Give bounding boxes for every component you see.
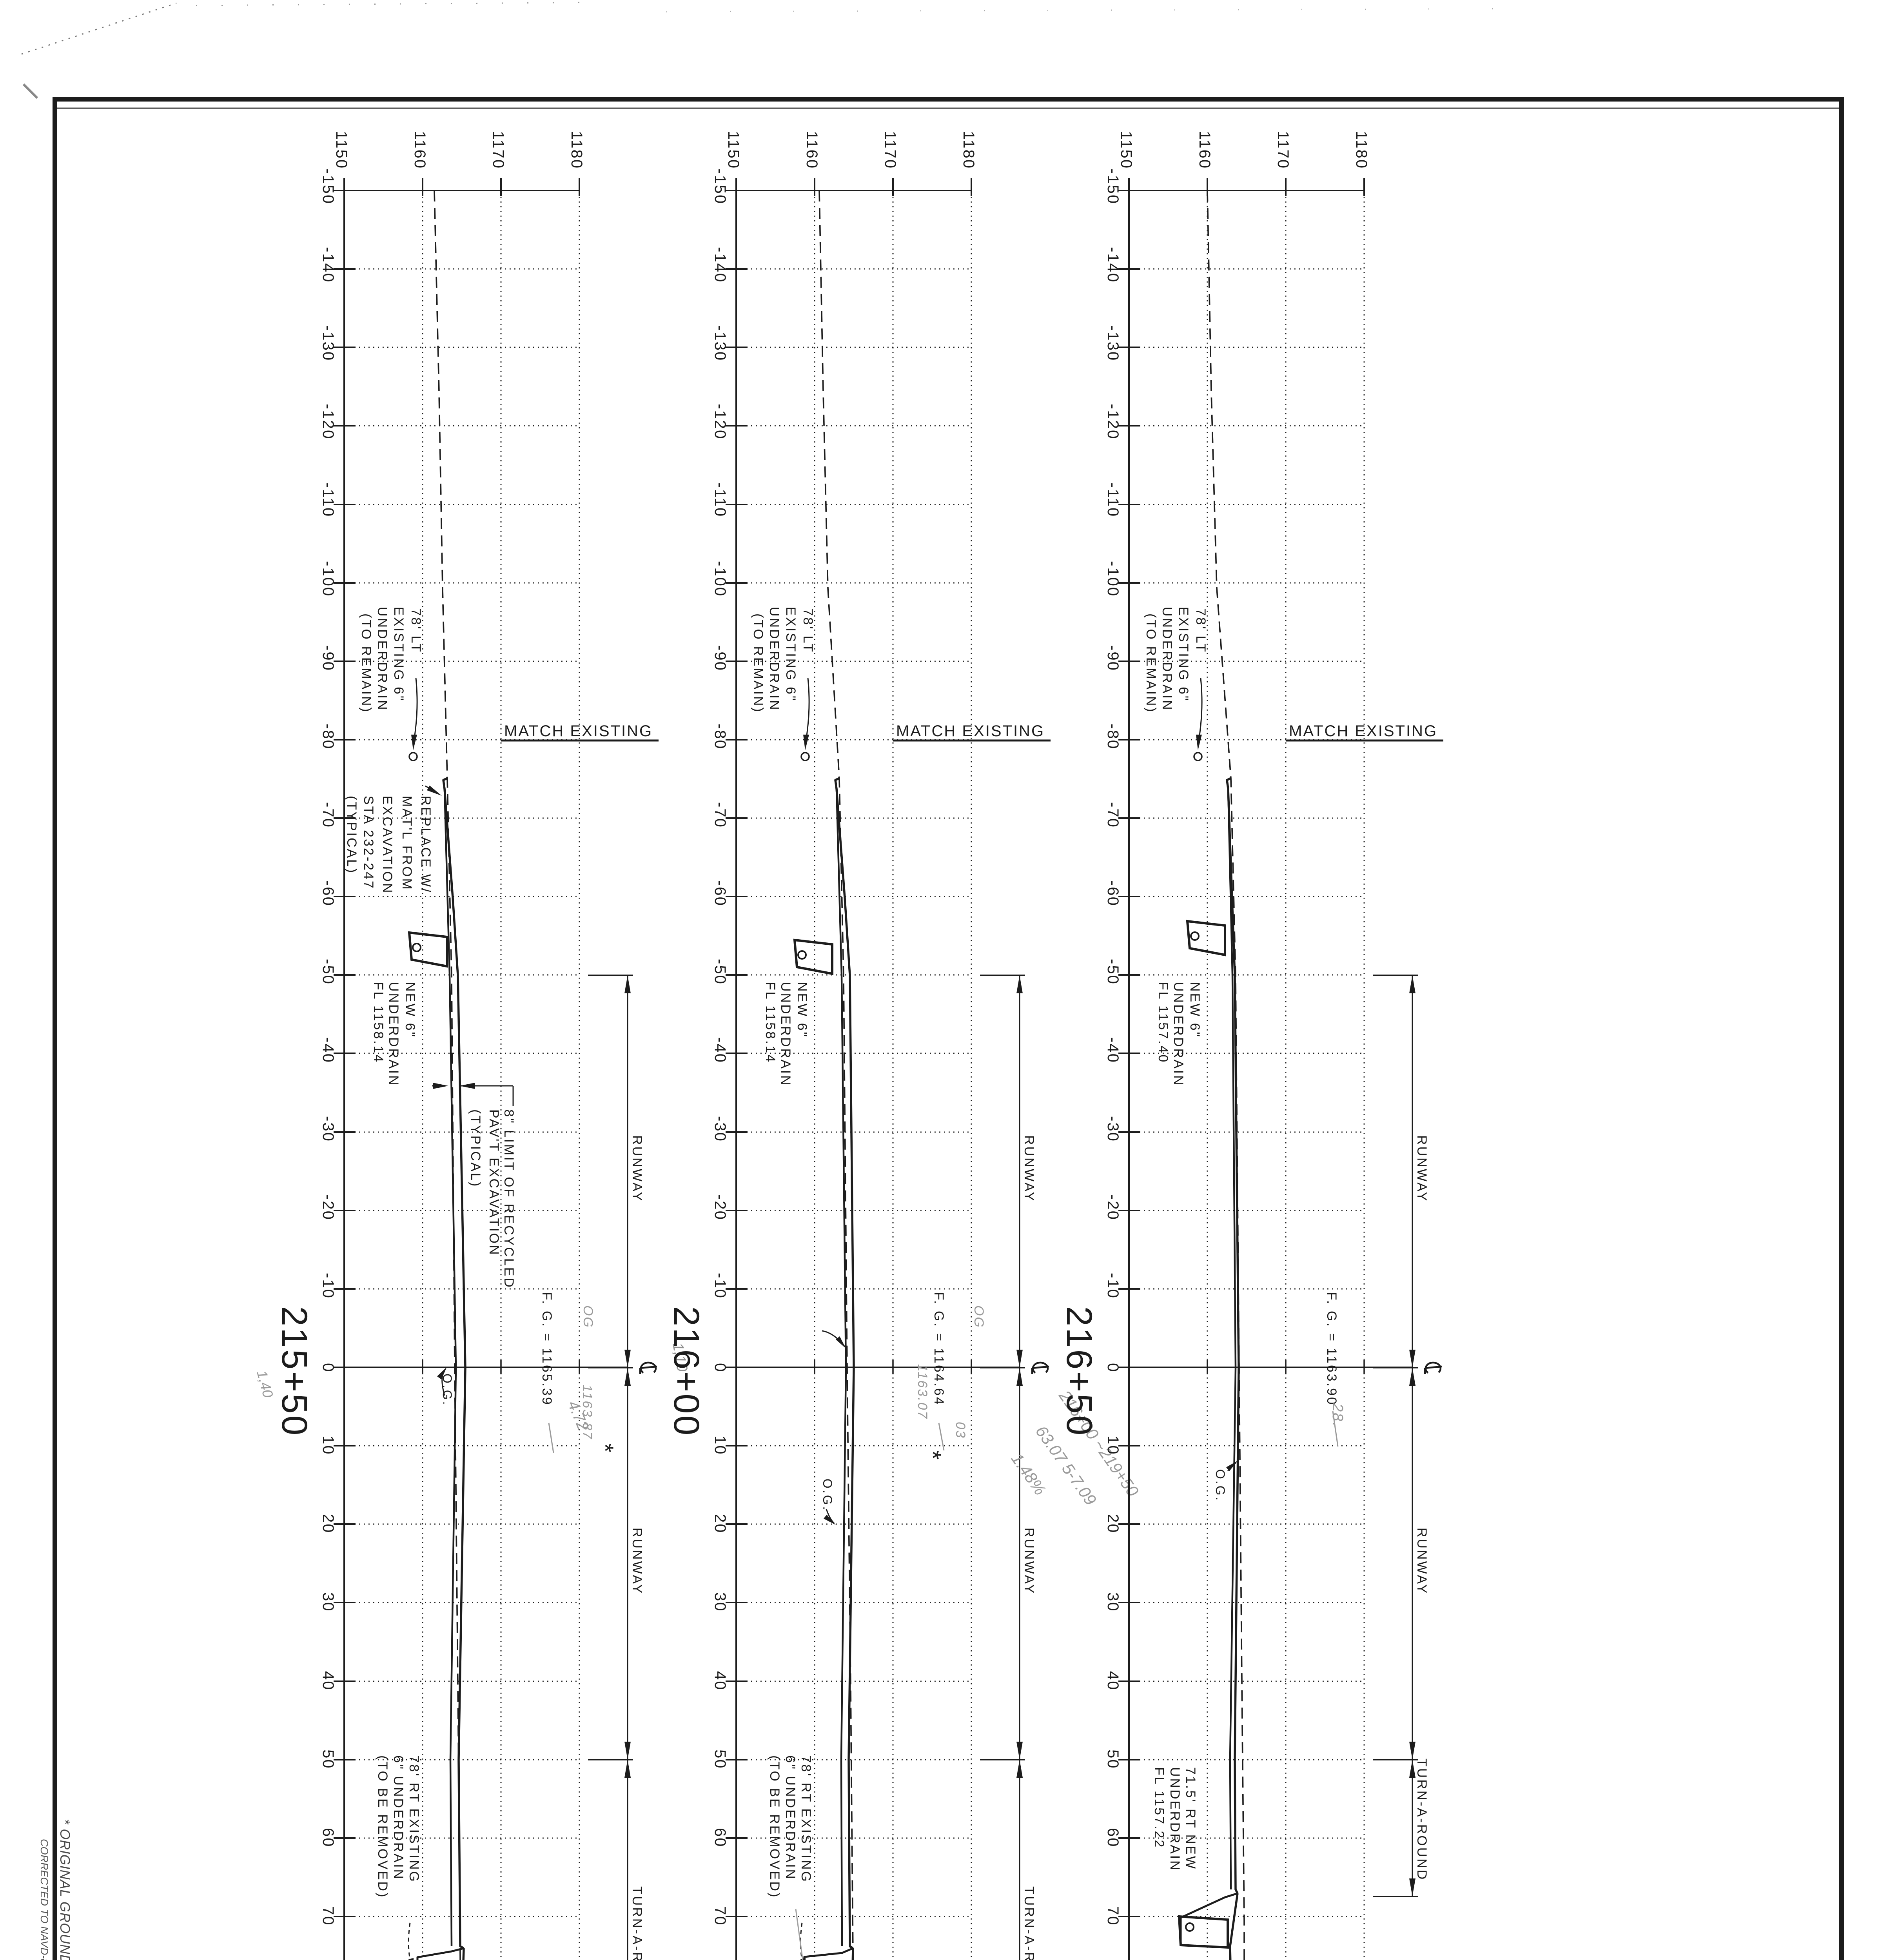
svg-text:1150: 1150 xyxy=(333,131,350,169)
svg-text:-70: -70 xyxy=(711,802,729,828)
svg-text:10: 10 xyxy=(319,1436,337,1455)
svg-text:30: 30 xyxy=(711,1592,729,1612)
svg-text:1160: 1160 xyxy=(803,131,820,169)
svg-text:OG: OG xyxy=(971,1305,986,1328)
svg-text:(TYPICAL): (TYPICAL) xyxy=(344,796,359,874)
svg-text:CORRECTED TO NAVD-88: CORRECTED TO NAVD-88 xyxy=(38,1839,50,1960)
svg-text:-30: -30 xyxy=(1104,1116,1122,1142)
svg-text:UNDERDRAIN: UNDERDRAIN xyxy=(1171,982,1186,1087)
svg-text:-150: -150 xyxy=(1104,169,1122,205)
svg-text:-80: -80 xyxy=(711,724,729,750)
svg-text:-30: -30 xyxy=(711,1116,729,1142)
svg-text:UNDERDRAIN: UNDERDRAIN xyxy=(1167,1767,1182,1872)
svg-text:1170: 1170 xyxy=(490,131,507,169)
svg-text:-150: -150 xyxy=(319,169,337,205)
svg-text:216+00: 216+00 xyxy=(666,1306,706,1437)
svg-text:RUNWAY: RUNWAY xyxy=(1022,1528,1036,1595)
svg-text:-120: -120 xyxy=(319,404,337,440)
svg-text:70: 70 xyxy=(319,1906,337,1926)
svg-text:(TO REMAIN): (TO REMAIN) xyxy=(751,613,766,713)
svg-text:-150: -150 xyxy=(711,169,729,205)
svg-text:-140: -140 xyxy=(1104,247,1122,283)
svg-text:-100: -100 xyxy=(711,561,729,597)
svg-text:UNDERDRAIN: UNDERDRAIN xyxy=(386,982,401,1087)
svg-text:EXISTING 6": EXISTING 6" xyxy=(1176,607,1191,702)
svg-text:20: 20 xyxy=(711,1514,729,1534)
svg-text:-100: -100 xyxy=(1104,561,1122,597)
svg-text:EXCAVATION: EXCAVATION xyxy=(380,796,395,895)
svg-text:1150: 1150 xyxy=(1118,131,1135,169)
svg-text:NEW 6": NEW 6" xyxy=(795,982,809,1038)
svg-text:78' LT: 78' LT xyxy=(408,608,423,653)
svg-text:-110: -110 xyxy=(711,483,729,517)
svg-text:OG: OG xyxy=(581,1305,595,1328)
svg-text:(TO BE REMOVED): (TO BE REMOVED) xyxy=(767,1755,782,1898)
svg-text:EXISTING 6": EXISTING 6" xyxy=(783,607,798,702)
svg-text:(TO BE REMOVED): (TO BE REMOVED) xyxy=(375,1755,390,1898)
svg-text:-130: -130 xyxy=(1104,325,1122,361)
svg-text:O.G.: O.G. xyxy=(820,1479,835,1512)
svg-text:0: 0 xyxy=(711,1363,729,1373)
svg-text:-140: -140 xyxy=(711,247,729,283)
svg-text:UNDERDRAIN: UNDERDRAIN xyxy=(767,607,782,711)
svg-text:(TO REMAIN): (TO REMAIN) xyxy=(359,613,374,713)
svg-text:70: 70 xyxy=(711,1906,729,1926)
svg-text:-10: -10 xyxy=(319,1273,337,1299)
svg-text:216+50: 216+50 xyxy=(1059,1306,1099,1437)
svg-text:215+50: 215+50 xyxy=(274,1306,314,1437)
svg-text:-70: -70 xyxy=(319,802,337,828)
svg-text:-60: -60 xyxy=(711,880,729,907)
svg-text:-140: -140 xyxy=(319,247,337,283)
svg-text:-40: -40 xyxy=(319,1037,337,1063)
svg-text:(TYPICAL): (TYPICAL) xyxy=(468,1109,483,1188)
svg-text:1180: 1180 xyxy=(568,131,585,169)
svg-text:-10: -10 xyxy=(711,1273,729,1299)
svg-text:UNDERDRAIN: UNDERDRAIN xyxy=(375,607,390,711)
svg-text:1180: 1180 xyxy=(960,131,977,169)
svg-text:50: 50 xyxy=(711,1749,729,1769)
svg-text:EXISTING 6": EXISTING 6" xyxy=(391,607,406,702)
svg-text:40: 40 xyxy=(319,1671,337,1691)
svg-text:RUNWAY: RUNWAY xyxy=(1414,1528,1429,1595)
svg-text:(TO REMAIN): (TO REMAIN) xyxy=(1143,613,1158,713)
svg-text:NEW 6": NEW 6" xyxy=(1187,982,1202,1038)
svg-text:70: 70 xyxy=(1104,1906,1122,1926)
svg-text:F. G. = 1165.39: F. G. = 1165.39 xyxy=(539,1292,554,1406)
svg-text:78' RT EXISTING: 78' RT EXISTING xyxy=(799,1755,813,1883)
svg-text:-120: -120 xyxy=(1104,404,1122,440)
svg-text:NEW 6": NEW 6" xyxy=(403,982,417,1038)
svg-text:1150: 1150 xyxy=(725,131,742,169)
svg-text:-100: -100 xyxy=(319,561,337,597)
svg-text:FL 1158.14: FL 1158.14 xyxy=(763,982,778,1063)
svg-text:8" LIMIT OF RECYCLED: 8" LIMIT OF RECYCLED xyxy=(501,1109,516,1289)
svg-text:40: 40 xyxy=(1104,1671,1122,1691)
svg-text:1160: 1160 xyxy=(1196,131,1213,169)
svg-text:FL 1158.14: FL 1158.14 xyxy=(371,982,386,1063)
svg-text:MATCH EXISTING: MATCH EXISTING xyxy=(896,722,1045,740)
svg-text:MAT'L FROM: MAT'L FROM xyxy=(399,796,414,891)
svg-text:03: 03 xyxy=(953,1422,968,1439)
svg-text:50: 50 xyxy=(1104,1749,1122,1769)
svg-text:1160: 1160 xyxy=(411,131,428,169)
svg-text:RUNWAY: RUNWAY xyxy=(1022,1135,1036,1202)
svg-text:MATCH EXISTING: MATCH EXISTING xyxy=(504,722,653,740)
svg-text:RUNWAY: RUNWAY xyxy=(630,1135,644,1202)
svg-text:30: 30 xyxy=(319,1592,337,1612)
svg-text:-70: -70 xyxy=(1104,802,1122,828)
svg-text:F. G. = 1164.64: F. G. = 1164.64 xyxy=(931,1292,946,1406)
svg-text:-50: -50 xyxy=(1104,959,1122,985)
svg-text:F. G. = 1163.90: F. G. = 1163.90 xyxy=(1324,1292,1339,1406)
svg-text:RUNWAY: RUNWAY xyxy=(630,1528,644,1595)
svg-text:-60: -60 xyxy=(319,880,337,907)
svg-text:-110: -110 xyxy=(1104,483,1122,517)
svg-text:-80: -80 xyxy=(1104,724,1122,750)
svg-text:FL 1157.22: FL 1157.22 xyxy=(1152,1767,1167,1849)
svg-text:60: 60 xyxy=(711,1828,729,1848)
svg-text:78' LT: 78' LT xyxy=(1193,608,1208,653)
svg-text:30: 30 xyxy=(1104,1592,1122,1612)
svg-text:*: * xyxy=(920,1450,946,1459)
svg-text:-50: -50 xyxy=(711,959,729,985)
svg-text:-90: -90 xyxy=(319,645,337,671)
svg-text:1170: 1170 xyxy=(882,131,899,169)
svg-text:PAV'T EXCAVATION: PAV'T EXCAVATION xyxy=(486,1109,501,1256)
svg-text:-20: -20 xyxy=(319,1194,337,1221)
svg-text:REPLACE W/: REPLACE W/ xyxy=(418,796,433,894)
svg-text:-30: -30 xyxy=(319,1116,337,1142)
svg-text:UNDERDRAIN: UNDERDRAIN xyxy=(778,982,793,1087)
svg-text:1170: 1170 xyxy=(1274,131,1292,169)
svg-text:-20: -20 xyxy=(711,1194,729,1221)
svg-text:78' RT EXISTING: 78' RT EXISTING xyxy=(407,1755,421,1883)
svg-text:FL 1157.40: FL 1157.40 xyxy=(1156,982,1171,1063)
svg-text:1163.07: 1163.07 xyxy=(915,1364,930,1419)
svg-text:71.5' RT NEW: 71.5' RT NEW xyxy=(1183,1767,1198,1870)
svg-text:20: 20 xyxy=(319,1514,337,1534)
svg-text:-40: -40 xyxy=(1104,1037,1122,1063)
svg-text:-110: -110 xyxy=(319,483,337,517)
svg-text:28.: 28. xyxy=(1329,1403,1346,1428)
svg-text:10: 10 xyxy=(711,1436,729,1455)
svg-text:78' LT: 78' LT xyxy=(800,608,815,653)
svg-text:STA 232-247: STA 232-247 xyxy=(361,796,376,890)
svg-text:60: 60 xyxy=(319,1828,337,1848)
svg-text:40: 40 xyxy=(711,1671,729,1691)
svg-text:-130: -130 xyxy=(711,325,729,361)
svg-text:-130: -130 xyxy=(319,325,337,361)
svg-text:-90: -90 xyxy=(711,645,729,671)
svg-text:6" UNDERDRAIN: 6" UNDERDRAIN xyxy=(391,1755,406,1880)
svg-text:UNDERDRAIN: UNDERDRAIN xyxy=(1160,607,1174,711)
svg-text:-40: -40 xyxy=(711,1037,729,1063)
svg-text:-80: -80 xyxy=(319,724,337,750)
svg-text:-10: -10 xyxy=(1104,1273,1122,1299)
svg-text:0: 0 xyxy=(1104,1363,1122,1373)
svg-text:0: 0 xyxy=(319,1363,337,1373)
svg-text:60: 60 xyxy=(1104,1828,1122,1848)
svg-text:TURN-A-ROUND: TURN-A-ROUND xyxy=(1022,1886,1036,1960)
svg-text:* ORIGINAL GROUND BASED ON AS-: * ORIGINAL GROUND BASED ON AS-BUILT F6, … xyxy=(57,1819,73,1960)
svg-text:10: 10 xyxy=(1104,1436,1122,1455)
svg-text:TURN-A-ROUND: TURN-A-ROUND xyxy=(630,1886,644,1960)
svg-text:*: * xyxy=(592,1443,618,1452)
svg-text:6" UNDERDRAIN: 6" UNDERDRAIN xyxy=(783,1755,798,1880)
svg-text:-120: -120 xyxy=(711,404,729,440)
svg-text:MATCH EXISTING: MATCH EXISTING xyxy=(1289,722,1437,740)
svg-text:1180: 1180 xyxy=(1353,131,1370,169)
svg-text:RUNWAY: RUNWAY xyxy=(1414,1135,1429,1202)
svg-text:-50: -50 xyxy=(319,959,337,985)
svg-text:TURN-A-ROUND: TURN-A-ROUND xyxy=(1414,1759,1429,1881)
svg-text:O.G.: O.G. xyxy=(1213,1469,1227,1502)
svg-text:-90: -90 xyxy=(1104,645,1122,671)
svg-text:-20: -20 xyxy=(1104,1194,1122,1221)
svg-text:20: 20 xyxy=(1104,1514,1122,1534)
svg-text:-60: -60 xyxy=(1104,880,1122,907)
svg-text:50: 50 xyxy=(319,1749,337,1769)
